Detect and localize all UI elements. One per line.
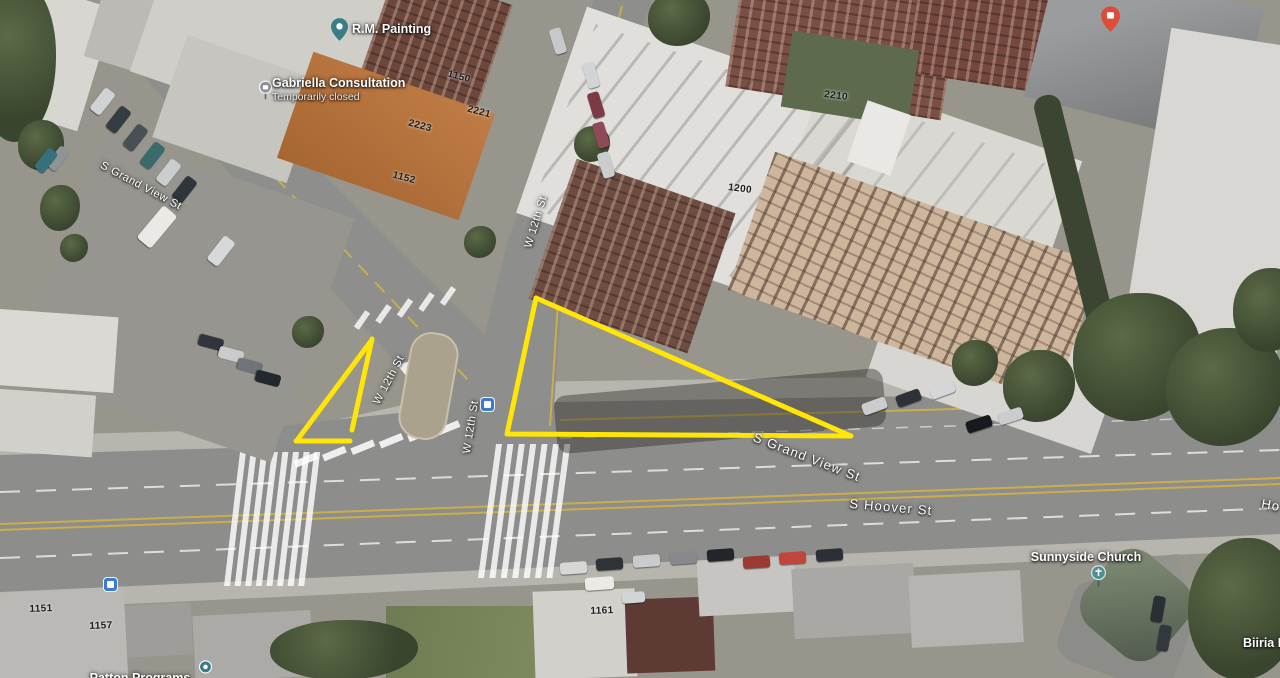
building-number: 1151 — [29, 603, 53, 615]
patton-pin-icon[interactable] — [198, 659, 213, 678]
gabriella-consultation-label[interactable]: Gabriella Consultation Temporarily close… — [272, 76, 405, 103]
bus-stop-icon[interactable] — [481, 398, 494, 411]
tree-canopy — [60, 234, 88, 262]
gabriella-status: Temporarily closed — [272, 91, 405, 103]
annotation-large-triangle — [507, 298, 851, 436]
bus-stop-icon[interactable] — [104, 578, 117, 591]
parked-car — [197, 333, 224, 351]
street-label-grand-view-east: S Grand View St — [751, 430, 863, 485]
parked-car — [622, 591, 646, 604]
tree-canopy — [574, 126, 610, 162]
brick-apartment — [906, 0, 1068, 95]
biiria-name: Biiria Lo — [1243, 636, 1280, 650]
parked-car — [581, 61, 600, 89]
parked-car — [89, 87, 116, 116]
gabriella-pin-icon[interactable] — [258, 80, 273, 106]
cupola — [847, 100, 911, 175]
road-network — [0, 0, 1280, 678]
parking-lot — [17, 131, 354, 462]
tree-canopy — [648, 0, 710, 46]
tree-canopy — [1188, 538, 1280, 678]
building-roof — [791, 563, 916, 639]
sunnyside-name: Sunnyside Church — [1031, 550, 1141, 564]
lodging-pin-icon[interactable] — [1101, 6, 1120, 37]
house-roof — [532, 588, 637, 678]
parked-car — [206, 235, 236, 267]
parked-car — [596, 557, 624, 571]
parked-car — [633, 554, 661, 568]
parked-car — [46, 145, 71, 172]
parked-car — [1150, 595, 1166, 623]
roof-texture — [532, 24, 870, 303]
parked-car — [254, 369, 281, 387]
tree-canopy — [1166, 328, 1280, 446]
parked-car — [105, 105, 132, 134]
satellite-imagery — [0, 0, 1280, 678]
street-label-hoover: S Hoover St — [849, 496, 933, 518]
parked-car — [155, 158, 182, 187]
building-roof — [0, 0, 115, 131]
patton-programs-label[interactable]: Patton Programs — [90, 671, 191, 678]
vacant-lot — [386, 606, 538, 678]
parked-car — [965, 414, 993, 433]
building-number: 2210 — [823, 89, 848, 103]
tree-canopy — [1073, 293, 1201, 421]
warehouse-roof — [1123, 28, 1280, 360]
gabriella-name: Gabriella Consultation — [272, 76, 405, 90]
parked-car — [895, 388, 923, 408]
building-number: 1161 — [590, 605, 614, 617]
building-roof — [866, 280, 1124, 454]
parked-car — [139, 141, 166, 170]
building-number: 1157 — [89, 620, 113, 632]
parked-car — [585, 576, 615, 591]
building-number: 1200 — [727, 182, 752, 196]
tree-canopy — [40, 185, 80, 231]
building-roof — [697, 556, 797, 617]
hedge — [1032, 92, 1116, 329]
parked-car — [816, 548, 844, 562]
building-number: 2221 — [466, 104, 492, 121]
parked-car — [560, 561, 588, 575]
rm-painting-pin-icon[interactable] — [331, 18, 348, 46]
apartment-roof — [766, 73, 1082, 334]
annotation-small-triangle-hypotenuse — [298, 341, 371, 439]
rm-painting-name: R.M. Painting — [352, 22, 431, 36]
street-label-w12th-upper: W 12th St — [522, 195, 549, 250]
median-island — [395, 329, 462, 444]
parked-car — [861, 396, 889, 416]
street-label-w12th-middle: W 12th St — [371, 353, 407, 406]
building-roof — [125, 602, 194, 657]
shadow-band — [553, 368, 887, 455]
building-roof — [908, 570, 1024, 648]
rm-painting-label[interactable]: R.M. Painting — [352, 22, 431, 36]
street-label-w12th-lower: W 12th St — [461, 400, 481, 455]
parked-car — [1156, 624, 1172, 652]
parked-car — [707, 548, 735, 562]
street-label-grand-view-west: S Grand View St — [98, 160, 183, 213]
parked-car — [779, 551, 807, 565]
apartment-facade-brick — [528, 159, 735, 354]
parked-car — [743, 555, 771, 569]
tree-canopy — [1003, 350, 1075, 422]
building-roof — [0, 309, 119, 393]
tree-canopy — [18, 120, 64, 170]
tree-canopy — [952, 340, 998, 386]
bus-glyph — [107, 581, 114, 588]
tree-canopy — [0, 0, 56, 142]
pitched-roof-house — [1024, 0, 1264, 148]
building-number: 2223 — [407, 118, 433, 135]
house-roof-dark — [625, 596, 716, 673]
tree-canopy — [270, 620, 418, 678]
annotation-small-triangle-right-edge — [352, 339, 372, 430]
parked-car — [586, 91, 605, 119]
parked-car — [591, 121, 610, 149]
street-label-hoover-partial: Ho — [1260, 496, 1280, 514]
parked-car — [997, 406, 1024, 425]
church-pin-icon[interactable] — [1090, 565, 1107, 593]
sunnyside-church-label[interactable]: Sunnyside Church — [1031, 550, 1141, 564]
annotation-triangles — [0, 0, 1280, 678]
apartment-facade-tan — [728, 152, 1102, 402]
parked-car — [670, 551, 698, 565]
roof-texture — [781, 90, 1064, 319]
parked-car — [34, 147, 59, 174]
parked-car — [548, 27, 567, 55]
parked-car — [596, 151, 615, 179]
building-number: 1152 — [391, 170, 416, 187]
bus-glyph — [484, 401, 491, 408]
biiria-label[interactable]: Biiria Lo — [1243, 636, 1280, 650]
tree-canopy — [464, 226, 496, 258]
building-roof — [0, 389, 96, 458]
map-canvas[interactable]: S Grand View St W 12th St W 12th St W 12… — [0, 0, 1280, 678]
apartment-roof — [516, 7, 885, 316]
patton-name: Patton Programs — [90, 671, 191, 678]
warehouse-roof — [0, 586, 128, 678]
parked-car — [236, 357, 263, 375]
building-roof — [84, 0, 183, 78]
church-base — [1052, 575, 1196, 678]
tree-canopy — [1233, 268, 1280, 352]
tree-canopy — [292, 316, 324, 348]
building-number: 1150 — [446, 69, 471, 86]
parked-car — [122, 123, 149, 152]
green-roof-house — [781, 30, 919, 126]
building-roof — [152, 35, 321, 183]
parked-car — [217, 345, 244, 363]
parked-car — [929, 380, 957, 400]
parked-car — [137, 205, 178, 249]
